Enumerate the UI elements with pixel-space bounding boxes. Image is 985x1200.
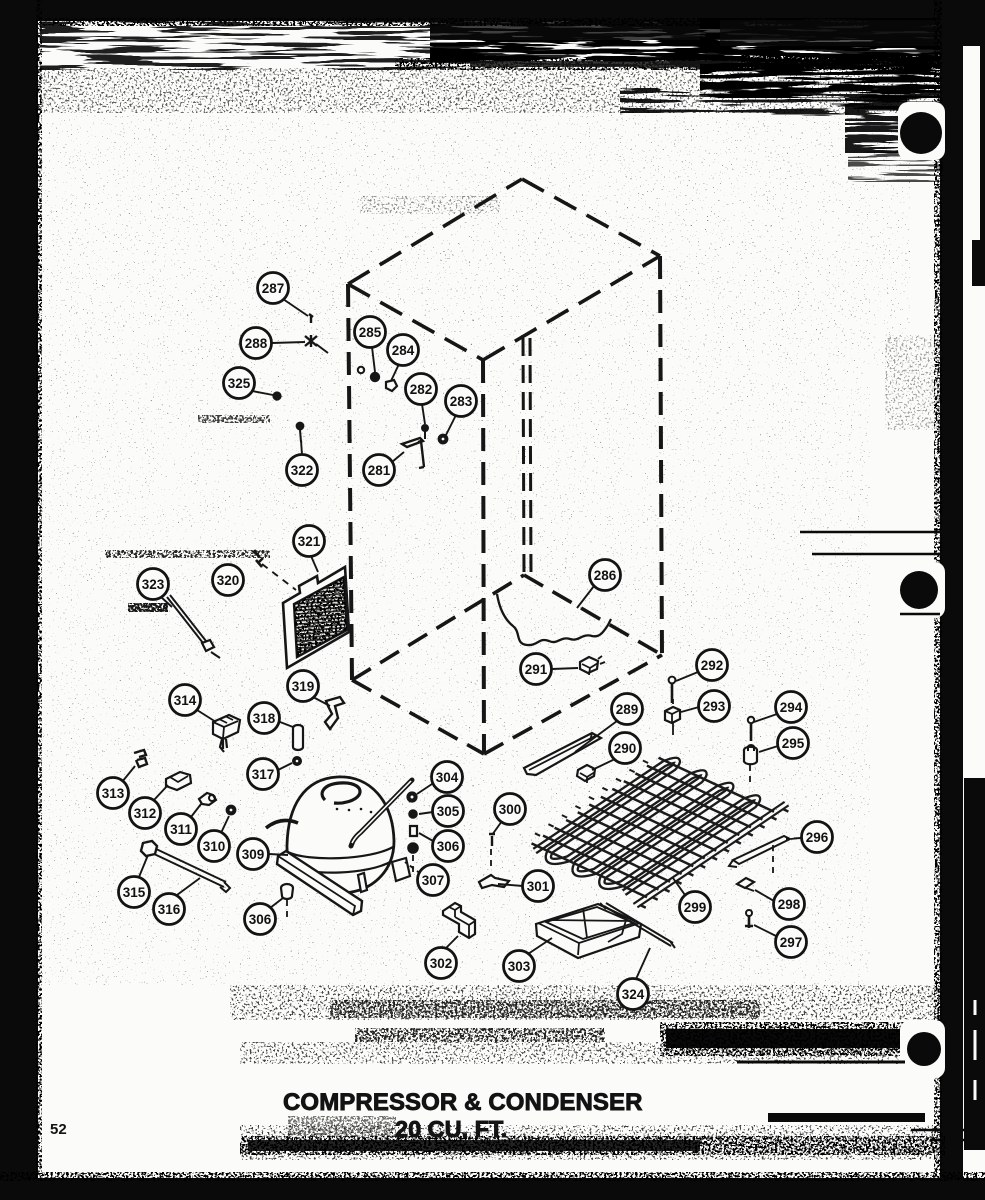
svg-text:285: 285 (359, 325, 382, 340)
svg-text:322: 322 (291, 463, 314, 478)
svg-text:297: 297 (780, 935, 803, 950)
svg-text:305: 305 (437, 804, 460, 819)
svg-text:284: 284 (392, 343, 415, 358)
svg-text:300: 300 (499, 802, 522, 817)
svg-text:309: 309 (242, 847, 265, 862)
svg-text:320: 320 (217, 573, 240, 588)
svg-text:306: 306 (437, 839, 460, 854)
svg-text:319: 319 (292, 679, 315, 694)
svg-text:323: 323 (142, 577, 165, 592)
svg-text:295: 295 (782, 736, 805, 751)
svg-text:315: 315 (123, 885, 146, 900)
svg-text:COMPRESSOR & CONDENSER: COMPRESSOR & CONDENSER (283, 1089, 643, 1116)
svg-text:324: 324 (622, 987, 645, 1002)
svg-text:316: 316 (158, 902, 181, 917)
svg-text:293: 293 (703, 699, 726, 714)
svg-text:286: 286 (594, 568, 617, 583)
svg-text:52: 52 (50, 1121, 67, 1138)
svg-text:289: 289 (616, 702, 639, 717)
svg-text:294: 294 (780, 700, 803, 715)
svg-text:281: 281 (368, 463, 391, 478)
svg-text:304: 304 (436, 770, 459, 785)
svg-text:313: 313 (102, 786, 125, 801)
svg-text:298: 298 (778, 897, 801, 912)
svg-text:283: 283 (450, 394, 473, 409)
svg-text:282: 282 (410, 382, 433, 397)
svg-text:288: 288 (245, 336, 268, 351)
svg-text:287: 287 (262, 281, 285, 296)
svg-text:302: 302 (430, 956, 453, 971)
svg-text:318: 318 (253, 711, 276, 726)
svg-text:20 CU. FT.: 20 CU. FT. (395, 1116, 507, 1142)
svg-text:317: 317 (252, 767, 275, 782)
svg-text:325: 325 (228, 376, 251, 391)
svg-text:321: 321 (298, 534, 321, 549)
svg-text:306: 306 (249, 912, 272, 927)
svg-text:311: 311 (170, 822, 192, 837)
svg-text:303: 303 (508, 959, 531, 974)
svg-text:291: 291 (525, 662, 548, 677)
svg-text:299: 299 (684, 900, 707, 915)
svg-text:296: 296 (806, 830, 829, 845)
svg-text:301: 301 (527, 879, 550, 894)
svg-text:312: 312 (134, 806, 157, 821)
svg-text:310: 310 (203, 839, 226, 854)
svg-text:290: 290 (614, 741, 637, 756)
svg-text:292: 292 (701, 658, 724, 673)
svg-text:314: 314 (174, 693, 197, 708)
svg-text:307: 307 (422, 873, 445, 888)
